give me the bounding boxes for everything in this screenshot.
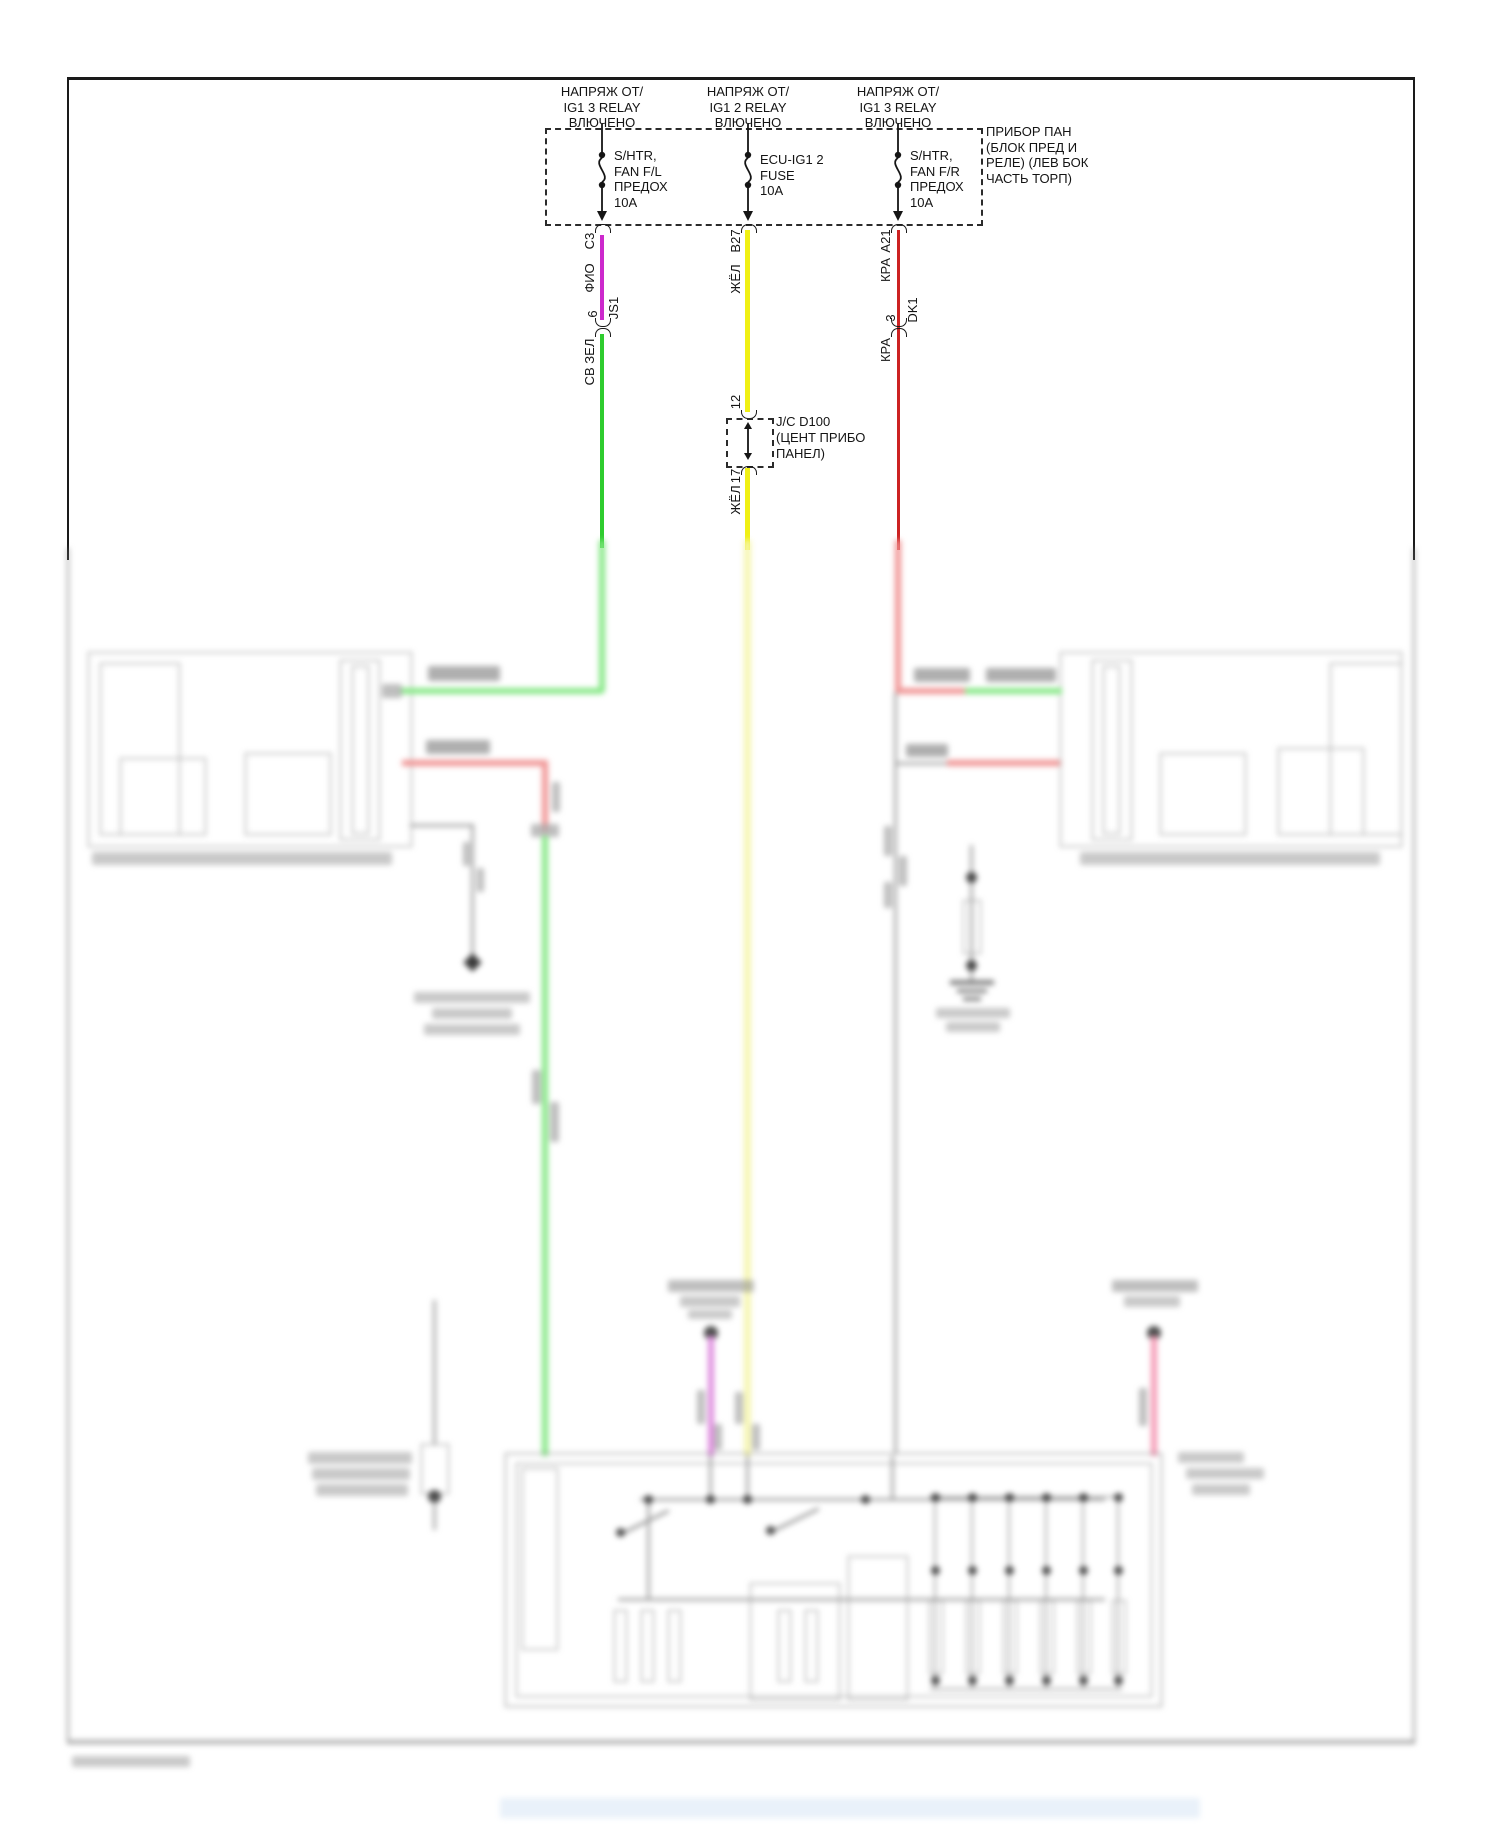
connector-bump [697,1390,705,1424]
bank-resistor [1040,1600,1054,1674]
blur-wire-green-right-horizontal [965,688,1062,694]
junction-dot [428,1490,441,1503]
panel-sub-box [750,1583,840,1700]
panel-drop-magenta [709,1456,712,1500]
switch-dot [616,1528,625,1537]
left-component-inner-box1 [120,758,206,835]
magenta-caption-line3 [688,1310,732,1319]
bank-dot [931,1493,940,1502]
panel-drop-switchleg [647,1500,650,1600]
gray-wire-right-horizontal [896,762,948,765]
panel-caption-line3 [1192,1484,1250,1495]
ground-diamond-icon [463,953,481,971]
blur-wire-red-right-vertical [895,540,901,692]
bank-dot [1079,1493,1088,1502]
bank-dot [1114,1493,1123,1502]
panel-caption-line2 [1186,1468,1264,1479]
bank-dot [1005,1676,1014,1685]
right-box-caption-blur [1080,852,1380,865]
small-component-vertical [433,1300,436,1445]
left-panel-caption-line3 [316,1484,408,1496]
bank-bottom-rail [930,1688,1122,1690]
left-ground-vertical [471,824,474,960]
red-horizontal-label-blur [426,740,490,754]
blur-wire-pink-vertical [1151,1336,1157,1456]
panel-left-tall-rect [522,1468,558,1650]
connector-bump [1139,1388,1147,1426]
connector-bump [884,882,892,908]
page-border-right-blur [1413,548,1415,1744]
left-ground-caption-line2 [432,1008,512,1019]
small-component-box [421,1444,449,1494]
bank-resistor [929,1600,943,1674]
bank-resistor [1003,1600,1017,1674]
connector-bump [735,1392,743,1424]
panel-sub-box2 [848,1556,908,1700]
blur-wire-yellow-long-vertical [744,540,751,1456]
panel-resistor [614,1610,627,1682]
bank-dot [968,1566,977,1575]
footer-text-blur [72,1756,190,1767]
connector-bump [477,868,484,892]
right-horizontal-label-blur2 [986,668,1056,682]
magenta-caption-line1 [668,1280,754,1292]
right-ground-caption-line2 [946,1022,1000,1032]
bank-top-rail [930,1496,1122,1498]
junction-dot [966,960,977,971]
bank-dot [1042,1676,1051,1685]
left-ground-horizontal [410,824,474,827]
connector-bump [532,1070,541,1104]
bus-dot [861,1495,870,1504]
connector-bump [884,826,892,856]
connector-bump [752,1424,760,1450]
ground-bar-2 [957,989,987,993]
left-connector-column-inner [352,666,369,834]
connector-bump [899,856,907,886]
small-component-tail [433,1504,436,1530]
bank-dot [931,1676,940,1685]
connector-bump [463,842,470,866]
green-horizontal-label-blur [428,666,500,681]
gray-wire-right-long-vertical [894,692,897,1454]
ground-bar-3 [963,997,981,1001]
bank-dot [1042,1566,1051,1575]
left-ground-caption-line1 [414,992,530,1003]
bank-dot [1114,1566,1123,1575]
pink-caption-line2 [1124,1296,1180,1307]
left-ground-caption-line3 [424,1024,520,1035]
bank-dot [931,1566,940,1575]
blur-wire-green-left-horizontal [400,688,603,694]
switch-dot [766,1526,775,1535]
blur-wire-red-right-horizontal2 [947,760,1060,766]
left-box-caption-blur [92,852,392,865]
left-panel-caption-line1 [308,1452,412,1464]
panel-drop-gray [891,1456,894,1500]
right-ground-resistor [963,900,981,954]
connector-bump [714,1424,722,1450]
schematic-blurred-section [0,0,1500,1828]
connector-bump [552,782,560,812]
left-panel-caption-line2 [312,1468,410,1480]
panel-resistor [641,1610,654,1682]
bank-resistor [1112,1600,1126,1674]
blur-wire-green-left-vertical [599,540,605,692]
bank-dot [968,1676,977,1685]
right-ground-caption-line1 [936,1008,1010,1018]
page-border-left-blur [67,548,69,1744]
right-red2-label-blur [906,744,948,757]
bank-dot [968,1493,977,1502]
blur-wire-red-left-horizontal [402,760,546,766]
magenta-caption-line2 [680,1296,740,1307]
bank-resistor [966,1600,980,1674]
panel-drop-yellow [746,1456,749,1500]
connector-bump [550,1102,559,1142]
bank-resistor [1077,1600,1091,1674]
page-bleed-blur [500,1798,1200,1818]
right-connector-column-inner [1103,666,1120,834]
blur-wire-green-left-long-vertical [542,836,548,1456]
right-component-inner-box1 [1160,753,1246,835]
bus-dot [743,1495,752,1504]
bank-dot [1005,1566,1014,1575]
bank-dot [1114,1676,1123,1685]
junction-dot [966,872,977,883]
right-component-inner-strip [1330,663,1402,835]
bank-dot [1042,1493,1051,1502]
ground-bar-1 [950,980,994,985]
page-border-bottom-blur [67,1740,1415,1744]
bus-dot [644,1495,653,1504]
bank-dot [1079,1566,1088,1575]
bank-dot [1005,1493,1014,1502]
right-horizontal-label-blur1 [914,668,970,682]
bank-dot [1079,1676,1088,1685]
pink-caption-line1 [1112,1280,1198,1292]
bus-dot [706,1495,715,1504]
blur-wire-red-right-horizontal [895,688,967,694]
left-component-inner-box2 [245,753,331,835]
panel-resistor [668,1610,681,1682]
panel-caption-line1 [1178,1452,1244,1463]
blur-wire-red-left-vertical [542,760,548,832]
connector-bump [382,684,402,698]
